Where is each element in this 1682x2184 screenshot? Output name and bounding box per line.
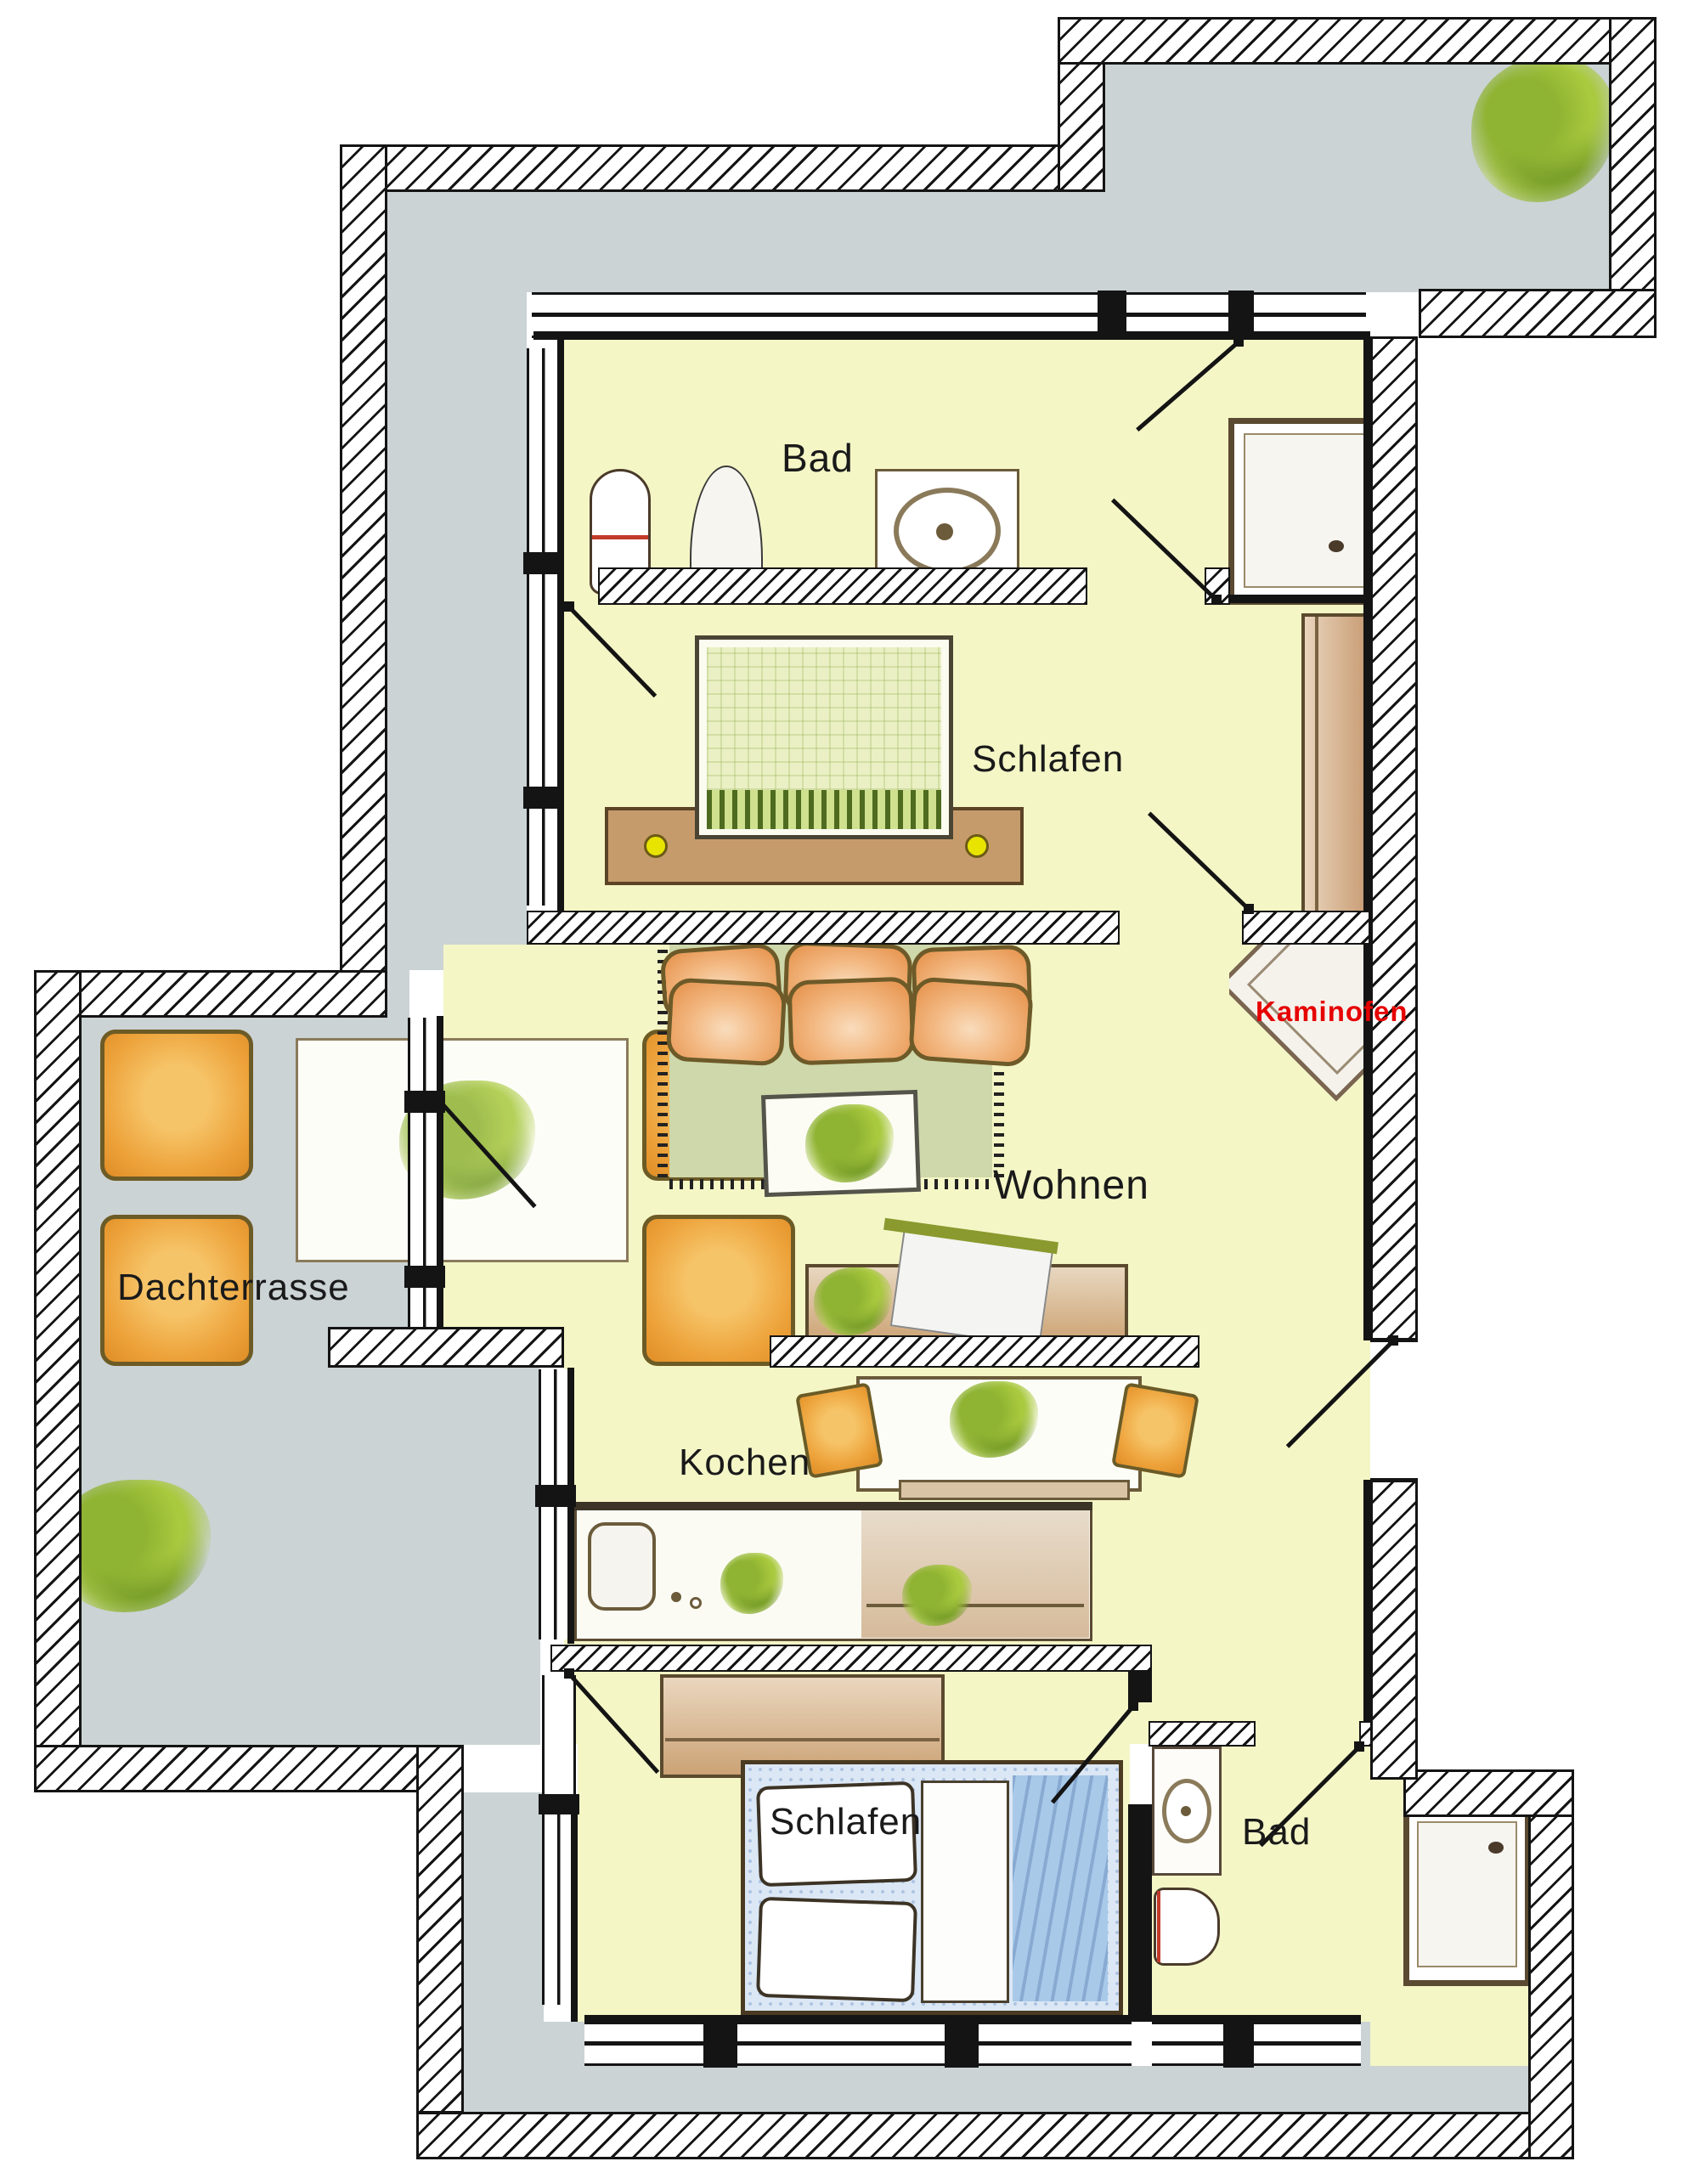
wall-segment: [1128, 1672, 1152, 1702]
room-label-schlafen-top: Schlafen: [972, 741, 1124, 778]
window-jamb: [945, 2020, 979, 2068]
window-band: [527, 809, 561, 906]
door-hinge: [564, 1668, 574, 1679]
partition-wall: [598, 567, 1087, 605]
kitchen-counter-edge: [574, 1502, 1092, 1510]
wall-edge: [437, 1016, 443, 1332]
outer-wall-dachterrasse-north: [34, 970, 387, 1018]
terrace-strip-south: [464, 2066, 1528, 2112]
dining-bench: [899, 1480, 1130, 1500]
annotation-kaminofen: Kaminofen: [1256, 996, 1408, 1028]
room-label-kochen: Kochen: [679, 1444, 810, 1481]
shower-drain-dot: [1329, 540, 1344, 552]
kitchen-cooktop: [861, 1510, 1089, 1638]
bed-pillow: [756, 1897, 917, 2002]
bed-duvet: [921, 1780, 1009, 2003]
window-jamb: [703, 2020, 737, 2068]
window-band: [1152, 2022, 1361, 2066]
toilet-rim-line: [1157, 1891, 1160, 1962]
terrace-strip-north-step: [1058, 192, 1105, 292]
bed-lamp-dot: [644, 834, 668, 858]
wall-edge: [567, 1368, 574, 1644]
dining-chair: [1111, 1382, 1199, 1479]
outer-wall-northeast-top: [1058, 17, 1657, 65]
outer-wall-east-upper: [1370, 336, 1418, 1340]
window-band: [527, 574, 561, 787]
kitchen-cooktop-line: [866, 1604, 1084, 1607]
wall-edge: [571, 1803, 578, 2022]
terrace-strip-west: [384, 292, 527, 970]
door-hinge: [1233, 336, 1244, 347]
wall-edge: [1152, 2015, 1361, 2022]
terrace-strip-southwest: [464, 1792, 544, 2112]
partition-wall-stub: [328, 1327, 564, 1368]
outer-wall-southwest-step: [416, 1745, 464, 2113]
outer-wall-dachterrasse-west: [34, 970, 82, 1792]
partition-wall: [1242, 911, 1370, 945]
sofa-seat-cushion: [787, 976, 915, 1065]
entry-door-band: [1370, 1342, 1418, 1478]
outer-wall-north: [340, 144, 1105, 192]
outer-wall-terrace-south: [1419, 289, 1657, 338]
bed-quilt: [707, 647, 941, 790]
door-hinge: [564, 601, 574, 612]
terrace-door-band: [542, 1675, 576, 1803]
partition-wall: [550, 1645, 1152, 1672]
wall-edge: [1363, 338, 1370, 1340]
wall-edge: [1228, 595, 1370, 603]
door-hinge: [1211, 595, 1222, 605]
partition-wall: [1149, 1721, 1256, 1747]
washbasin-drain-dot: [936, 523, 953, 540]
wall-segment: [1128, 1804, 1152, 2022]
door-hinge: [1244, 904, 1254, 914]
wall-edge: [533, 331, 1370, 340]
room-label-bad-bottom: Bad: [1242, 1814, 1311, 1851]
outer-wall-west-upper: [340, 144, 387, 1018]
shower-tray: [1244, 433, 1368, 588]
door-hinge: [435, 1096, 445, 1106]
floor-plan: Bad Schlafen Wohnen Dachterrasse Kochen …: [0, 0, 1682, 2184]
window-jamb: [1223, 2020, 1254, 2068]
toilet-rim-line: [592, 535, 648, 539]
shower-tray: [1417, 1821, 1517, 1967]
window-band: [527, 348, 561, 552]
wardrobe-icon: [1301, 613, 1371, 917]
kitchen-sink-icon: [588, 1522, 656, 1611]
room-label-dachterrasse: Dachterrasse: [117, 1269, 350, 1306]
window-band: [584, 2022, 1132, 2066]
shower-drain-dot: [1488, 1842, 1504, 1854]
toilet-icon: [1154, 1888, 1220, 1966]
sink-faucet-dot: [671, 1592, 681, 1602]
outer-wall-east-lower: [1370, 1480, 1418, 1780]
outer-wall-niche-north: [1403, 1769, 1574, 1817]
door-hinge: [1388, 1335, 1398, 1346]
wall-edge: [584, 2015, 1132, 2022]
sofa-seat-cushion: [908, 976, 1034, 1068]
outer-wall-dachterrasse-south: [34, 1745, 464, 1792]
terrace-chair: [100, 1030, 253, 1181]
wardrobe-line: [1315, 617, 1318, 914]
wardrobe-line: [665, 1738, 940, 1741]
wall-edge: [557, 338, 564, 911]
sofa-seat-cushion: [666, 977, 787, 1066]
terrace-strip-north: [384, 192, 1058, 292]
door-hinge: [1354, 1741, 1364, 1752]
partition-wall: [527, 911, 1120, 945]
terrace-strip-south2: [544, 2022, 584, 2066]
door-hinge: [1128, 1701, 1138, 1711]
wall-edge: [1363, 1480, 1370, 1744]
room-label-schlafen-bottom: Schlafen: [770, 1803, 922, 1841]
room-label-wohnen: Wohnen: [993, 1165, 1149, 1206]
sink-faucet-dot: [690, 1597, 702, 1609]
room-label-bad-top: Bad: [782, 438, 854, 477]
kaminofen-stove-icon: [1229, 945, 1370, 1113]
partition-wall: [770, 1335, 1199, 1368]
bed-fringe: [707, 790, 941, 829]
outer-wall-south: [416, 2112, 1574, 2159]
dachterrasse-area2: [409, 1368, 540, 1745]
bed-blue-throw: [1013, 1775, 1108, 2001]
washbasin-drain-dot: [1181, 1806, 1191, 1816]
bed-lamp-dot: [965, 834, 989, 858]
outer-wall-niche-east: [1528, 1798, 1574, 2159]
terrace-strip-west2: [387, 970, 409, 1018]
